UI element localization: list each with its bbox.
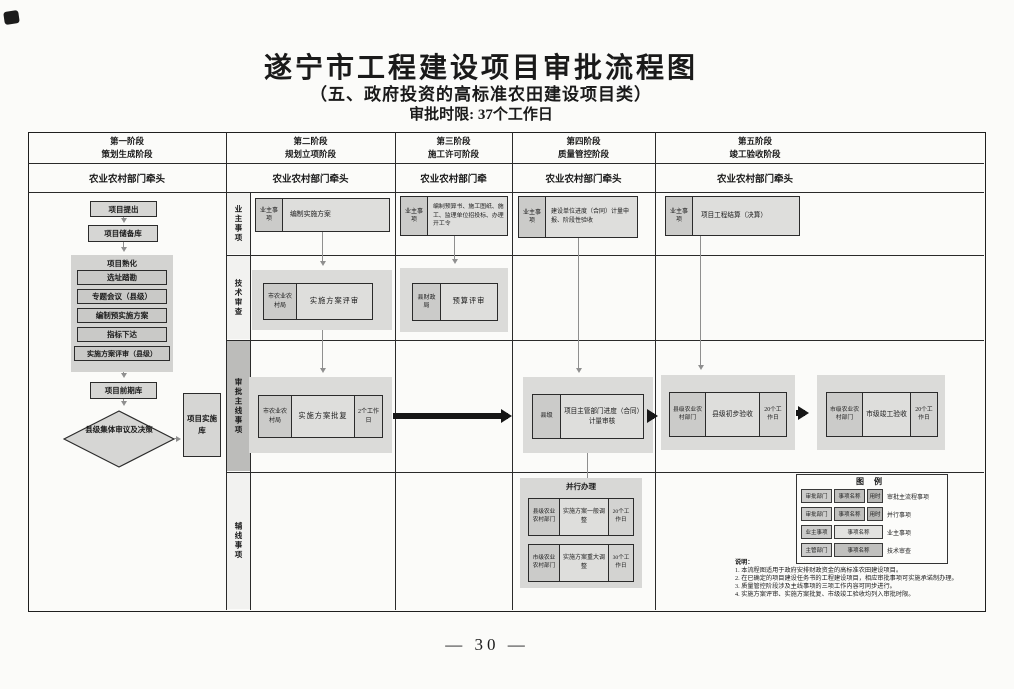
s4-owner-name: 建设单位进度（合同）计量申报、阶段性验收	[546, 197, 637, 237]
note-3: 3. 质量管控阶段涉及主线事项的三项工作内容可同步进行。	[735, 583, 896, 591]
row-label-auxiliary: 辅线事项	[227, 473, 250, 609]
stage5-line2: 竣工验收阶段	[655, 148, 855, 161]
arrow-down	[700, 236, 701, 368]
legend-title: 图 例	[796, 476, 946, 487]
grid-line	[512, 132, 513, 610]
s3-owner-dept: 业主事项	[401, 197, 428, 235]
s2-tech-dept: 市农业农村局	[264, 284, 297, 319]
project-proposal-box: 项目提出	[90, 201, 157, 217]
s2-main-time: 2个工作日	[355, 396, 382, 437]
s3-owner-box: 业主事项 编制预算书、施工图纸、施工、监理单位招投标、办理开工令	[400, 196, 508, 236]
grid-line	[226, 472, 984, 473]
target-issue-box: 指标下达	[77, 327, 167, 342]
site-survey-box: 选址踏勘	[77, 270, 167, 285]
s5-main-box-1: 县级农业农村部门 县级初步验收 20个工作日	[669, 392, 787, 437]
document-page: 遂宁市工程建设项目审批流程图 （五、政府投资的高标准农田建设项目类） 审批时限:…	[0, 0, 1014, 689]
legend-r2c3: 用时	[867, 507, 883, 521]
arrow-down	[123, 242, 124, 250]
stage3-line1: 第三阶段	[395, 135, 512, 148]
s4-parallel-box-1: 县级农业农村部门 实施方案一般调整 20个工作日	[528, 498, 634, 536]
legend-r4c1: 主管部门	[801, 543, 832, 557]
s2-main-box: 市农业农村局 实施方案批复 2个工作日	[258, 395, 383, 438]
grid-line	[28, 163, 984, 164]
s2-owner-name: 编制实施方案	[283, 199, 389, 231]
legend-r4-desc: 技术审查	[887, 543, 911, 557]
arrow-down	[123, 372, 124, 376]
s4-owner-dept: 业主事项	[519, 197, 546, 237]
s5-owner-dept: 业主事项	[666, 197, 693, 235]
s4-p1-name: 实施方案一般调整	[560, 499, 609, 535]
s5-main-box-2: 市级农业农村部门 市级竣工验收 20个工作日	[826, 392, 938, 437]
legend-r1c2: 事项名称	[834, 489, 865, 503]
special-meeting-box: 专题会议（县级）	[77, 289, 167, 304]
s4-p2-name: 实施方案重大调整	[560, 545, 609, 581]
arrow-down	[578, 238, 579, 371]
s4-main-box: 县级 项目主管部门进度（合同）计量审核	[532, 394, 644, 439]
s4-p1-time: 20个工作日	[609, 499, 633, 535]
arrow-down	[322, 232, 323, 264]
stage5-header: 第五阶段 竣工验收阶段	[655, 135, 855, 161]
fat-arrow-right	[796, 410, 805, 416]
stage2-header: 第二阶段 规划立项阶段	[226, 135, 395, 161]
legend-r1c1: 审批部门	[801, 489, 832, 503]
fat-arrow-right	[393, 413, 508, 419]
s3-owner-name: 编制预算书、施工图纸、施工、监理单位招投标、办理开工令	[428, 197, 507, 235]
legend-r3c2: 事项名称	[834, 525, 883, 539]
s5-m2-time: 20个工作日	[911, 393, 937, 436]
stage3-header: 第三阶段 施工许可阶段	[395, 135, 512, 161]
stage4-lead: 农业农村部门牵头	[512, 171, 655, 185]
stage5-lead: 农业农村部门牵头	[655, 171, 855, 185]
stage1-line1: 第一阶段	[28, 135, 226, 148]
s3-tech-name: 预算评审	[441, 284, 497, 320]
s2-main-dept: 市农业农村局	[259, 396, 292, 437]
project-maturation-title: 项目熟化	[71, 258, 173, 269]
s5-m1-name: 县级初步验收	[706, 393, 760, 436]
arrow-right	[174, 438, 179, 439]
stage2-line2: 规划立项阶段	[226, 148, 395, 161]
grid-line	[28, 192, 984, 193]
grid-line	[395, 132, 396, 610]
s4-owner-box: 业主事项 建设单位进度（合同）计量申报、阶段性验收	[518, 196, 638, 238]
scan-mark	[3, 10, 20, 25]
stage2-lead: 农业农村部门牵头	[226, 171, 395, 185]
plan-review-county-box: 实施方案评审（县级）	[74, 346, 170, 361]
stage4-line2: 质量管控阶段	[512, 148, 655, 161]
decision-diamond	[63, 410, 175, 468]
s4-p1-dept: 县级农业农村部门	[529, 499, 560, 535]
s5-m1-dept: 县级农业农村部门	[670, 393, 706, 436]
s2-tech-name: 实施方案评审	[297, 284, 372, 319]
s2-owner-box: 业主事项 编制实施方案	[255, 198, 390, 232]
stage4-header: 第四阶段 质量管控阶段	[512, 135, 655, 161]
row-label-mainline: 审批主线事项	[227, 341, 250, 471]
row-label-owner: 业主事项	[227, 193, 250, 254]
arrow-down	[123, 399, 124, 404]
arrow-down	[322, 330, 323, 371]
s5-owner-name: 项目工程结算（决算）	[693, 197, 799, 235]
s3-tech-box: 县财政局 预算评审	[412, 283, 498, 321]
s2-main-name: 实施方案批复	[292, 396, 355, 437]
row-label-mainline-text: 审批主线事项	[233, 378, 244, 435]
s5-m1-time: 20个工作日	[760, 393, 786, 436]
row-label-auxiliary-text: 辅线事项	[233, 522, 244, 560]
decision-diamond-label: 县级集体审议及决策	[83, 425, 155, 436]
row-label-tech-text: 技术审查	[233, 279, 244, 317]
fat-arrow-right	[650, 413, 654, 419]
s4-p2-time: 30个工作日	[609, 545, 633, 581]
stage1-header: 第一阶段 策划生成阶段	[28, 135, 226, 161]
page-number: — 30 —	[0, 635, 974, 655]
s5-owner-box: 业主事项 项目工程结算（决算）	[665, 196, 800, 236]
s4-parallel-box-2: 市级农业农村部门 实施方案重大调整 30个工作日	[528, 544, 634, 582]
legend-r1-desc: 审批主流程事项	[887, 489, 929, 503]
legend-r2c2: 事项名称	[834, 507, 865, 521]
note-4: 4. 实施方案评审、实施方案批复、市级竣工验收均列入审批时限。	[735, 591, 914, 599]
grid-line	[226, 255, 984, 256]
note-1: 1. 本流程图适用于政府安排财政资金的高标准农田建设项目。	[735, 567, 902, 575]
grid-line	[226, 340, 984, 341]
stage3-line2: 施工许可阶段	[395, 148, 512, 161]
parallel-title: 并行办理	[520, 481, 642, 492]
project-preliminary-box: 项目前期库	[90, 382, 157, 399]
stage4-line1: 第四阶段	[512, 135, 655, 148]
row-label-owner-text: 业主事项	[233, 205, 244, 243]
legend-r2c1: 审批部门	[801, 507, 832, 521]
note-2: 2. 在已确定的项目建设任务书的工程建设项目，相应审批事项可实施承诺制办理。	[735, 575, 958, 583]
arrow-down	[454, 236, 455, 262]
s5-m2-dept: 市级农业农村部门	[827, 393, 863, 436]
s5-m2-name: 市级竣工验收	[863, 393, 911, 436]
project-implementation-library-box: 项目实施库	[183, 393, 221, 457]
stage1-lead: 农业农村部门牵头	[28, 171, 226, 185]
legend-r3-desc: 业主事项	[887, 525, 911, 539]
connector-line	[587, 453, 588, 478]
legend-r3c1: 业主事项	[801, 525, 832, 539]
legend-r2-desc: 并行事项	[887, 507, 911, 521]
pre-implementation-plan-box: 编制预实施方案	[77, 308, 167, 323]
s2-owner-dept: 业主事项	[256, 199, 283, 231]
stage2-line1: 第二阶段	[226, 135, 395, 148]
stage3-lead: 农业农村部门牵	[395, 171, 512, 185]
legend-r4c2: 事项名称	[834, 543, 883, 557]
arrow-down	[123, 217, 124, 221]
s3-tech-dept: 县财政局	[413, 284, 441, 320]
legend-r1c3: 用时	[867, 489, 883, 503]
notes-title: 说明：	[735, 559, 754, 567]
project-reserve-box: 项目储备库	[88, 225, 158, 242]
row-label-tech: 技术审查	[227, 256, 250, 339]
stage5-line1: 第五阶段	[655, 135, 855, 148]
s4-p2-dept: 市级农业农村部门	[529, 545, 560, 581]
stage1-line2: 策划生成阶段	[28, 148, 226, 161]
s4-main-dept: 县级	[533, 395, 561, 438]
page-subtitle: （五、政府投资的高标准农田建设项目类）	[0, 80, 962, 105]
s4-main-name: 项目主管部门进度（合同）计量审核	[561, 395, 643, 438]
grid-line	[655, 132, 656, 610]
approval-time-limit: 审批时限: 37个工作日	[0, 103, 962, 124]
s2-tech-box: 市农业农村局 实施方案评审	[263, 283, 373, 320]
